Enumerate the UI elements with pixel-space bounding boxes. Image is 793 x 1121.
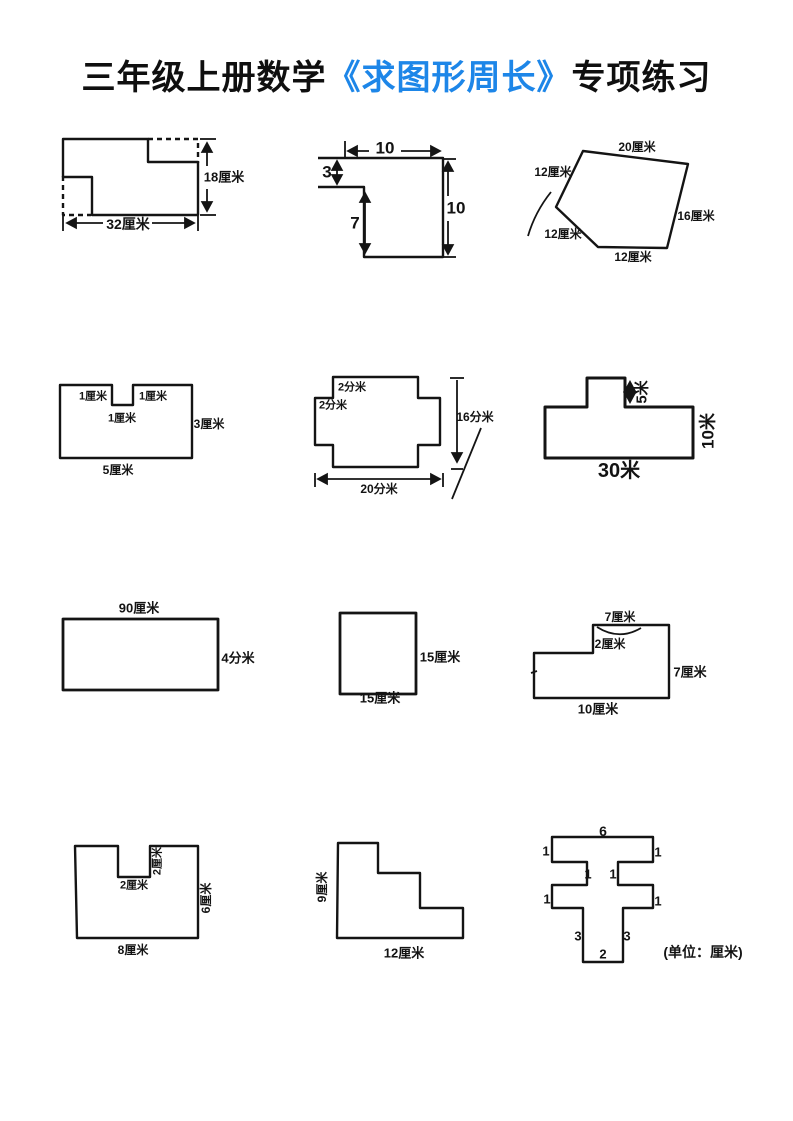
- fig3-top-label: 20厘米: [618, 141, 655, 153]
- fig7-right-label: 4分米: [221, 652, 254, 665]
- fig6-right-label: 10米: [700, 413, 717, 449]
- fig4-right-label: 3厘米: [194, 418, 225, 430]
- fig3-right-label: 16厘米: [677, 210, 714, 222]
- fig4-notch-left-label: 1厘米: [79, 392, 107, 403]
- fig4-notch-right-label: 1厘米: [139, 392, 167, 403]
- fig9-bottom-label: 10厘米: [578, 703, 618, 716]
- figure-6-bump-rect: [545, 378, 693, 458]
- fig9-top-label: 7厘米: [605, 611, 636, 623]
- figure-12-double-t: [552, 837, 653, 962]
- brace-arc: [597, 627, 641, 634]
- fig4-notch-depth-label: 1厘米: [108, 414, 136, 425]
- fig5-bottom-label: 20分米: [360, 483, 397, 495]
- fig6-bottom-label: 30米: [598, 461, 640, 481]
- fig10-right-label: 6厘米: [200, 883, 212, 914]
- fig10-notch-height-label: 2厘米: [153, 847, 164, 875]
- fig8-bottom-label: 15厘米: [360, 692, 400, 705]
- fig10-notch-width-label: 2厘米: [120, 881, 148, 892]
- fig12-top-right-label: 1: [654, 846, 661, 859]
- figure-11-staircase: [337, 843, 463, 938]
- fig12-top-label: 6: [599, 824, 607, 838]
- fig12-neck-left-label: 1: [584, 868, 591, 881]
- fig3-bottom-label: 12厘米: [614, 251, 651, 263]
- fig12-top-left-label: 1: [542, 845, 549, 858]
- fig12-stem-left-label: 3: [574, 930, 581, 943]
- figure-7-rectangle: [63, 619, 218, 690]
- fig10-bottom-label: 8厘米: [118, 944, 149, 956]
- figure-5-cross-shape: [315, 377, 481, 499]
- fig2-left-label: 3: [322, 164, 331, 181]
- fig3-upper-left-label: 12厘米: [534, 166, 571, 178]
- fig12-bottom-label: 2: [599, 948, 606, 961]
- figure-9-l-shape: [531, 625, 669, 698]
- fig9-step-label: 2厘米: [595, 638, 626, 650]
- fig12-neck-right-label: 1: [609, 868, 616, 881]
- figure-2-l-shape: [318, 141, 456, 257]
- fig5-step-left-label: 2分米: [319, 401, 347, 412]
- figure-8-square: [340, 613, 416, 694]
- fig11-left-label: 9厘米: [316, 872, 328, 903]
- fig6-bump-label: 5米: [635, 380, 650, 403]
- fig8-right-label: 15厘米: [420, 651, 460, 664]
- fig9-right-label: 7厘米: [673, 666, 706, 679]
- fig5-step-top-label: 2分米: [338, 383, 366, 394]
- worksheet-page: 三年级上册数学《求图形周长》专项练习: [0, 0, 793, 1121]
- fig12-mid-left-label: 1: [543, 893, 550, 906]
- fig2-right-label: 10: [447, 200, 466, 217]
- fig1-height-label: 18厘米: [204, 171, 244, 184]
- figure-10-notched-rect: [75, 846, 198, 938]
- fig3-lower-left-label: 12厘米: [544, 228, 581, 240]
- fig11-bottom-label: 12厘米: [384, 947, 424, 960]
- fig12-stem-right-label: 3: [623, 930, 630, 943]
- unit-note: (单位：厘米): [663, 942, 742, 962]
- fig4-bottom-label: 5厘米: [103, 464, 134, 476]
- fig12-mid-right-label: 1: [654, 895, 661, 908]
- fig1-width-label: 32厘米: [106, 217, 150, 231]
- fig2-top-label: 10: [376, 140, 395, 157]
- fig5-right-label: 16分米: [456, 411, 493, 423]
- fig7-top-label: 90厘米: [119, 602, 159, 615]
- fig2-inner-label: 7: [350, 215, 359, 232]
